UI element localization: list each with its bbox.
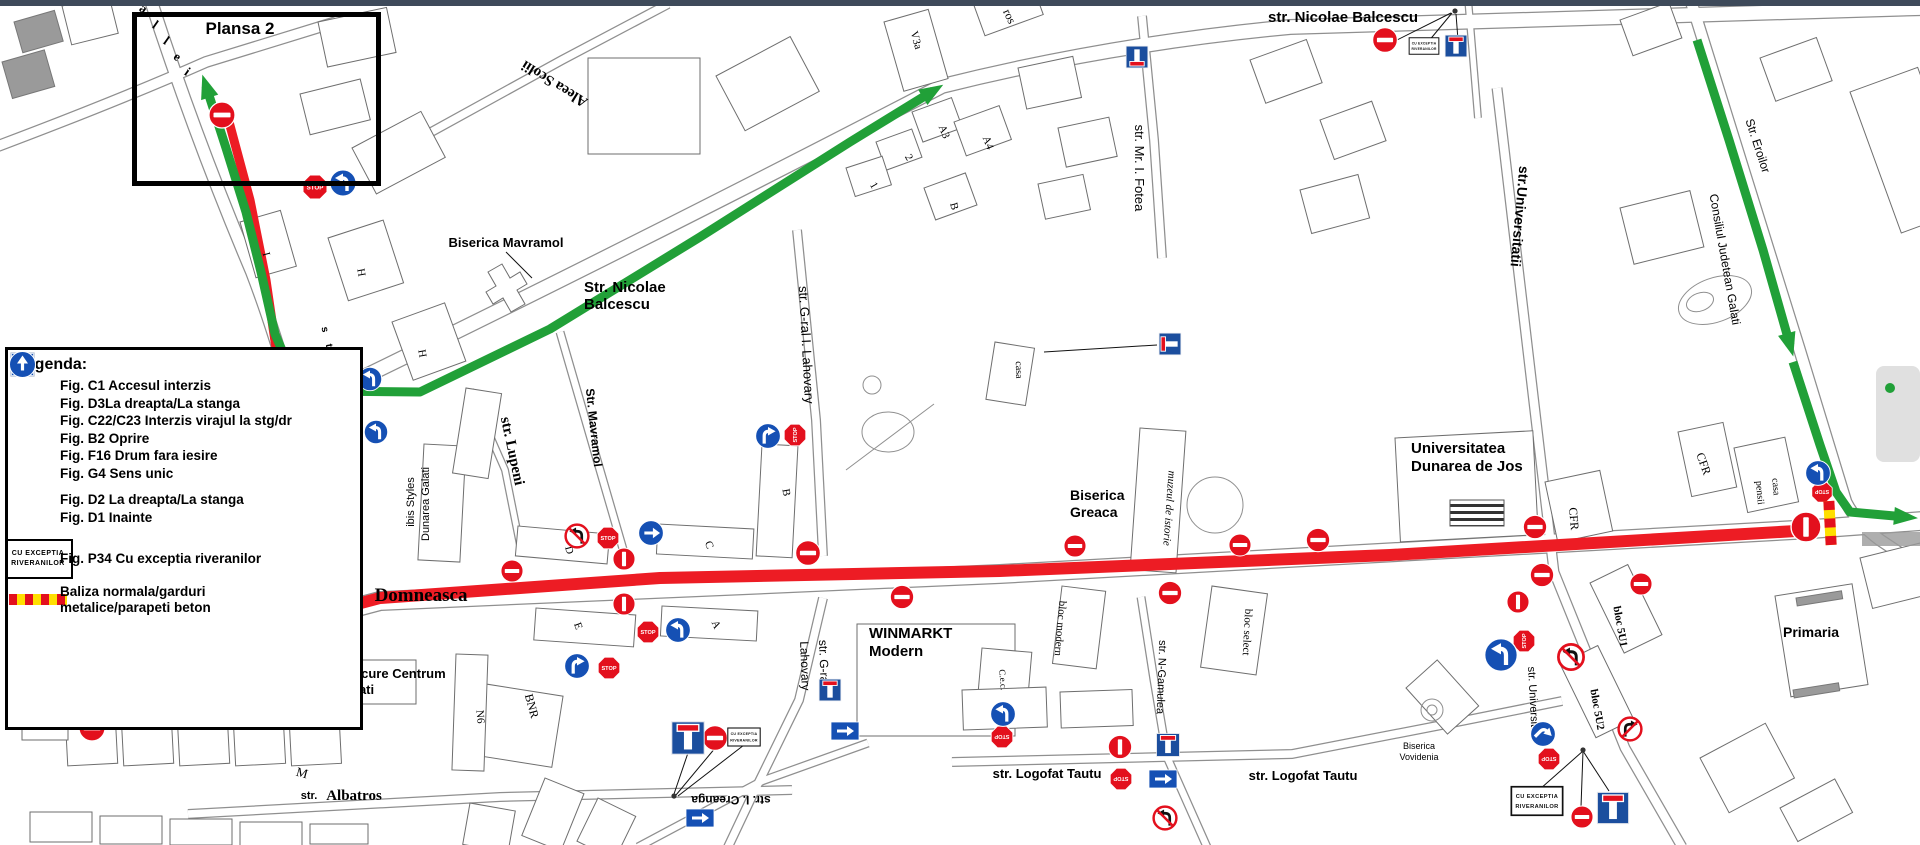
no-entry-sign	[1373, 28, 1398, 53]
street-label: Primaria	[1783, 624, 1839, 640]
dead-end-sign	[1597, 792, 1628, 823]
street-label: Vovidenia	[1399, 752, 1438, 762]
legend-p34-icon: CU EXCEPTIARIVERANILOR	[16, 539, 60, 579]
no-entry-sign	[501, 560, 523, 582]
dead-end-sign	[1445, 35, 1467, 57]
legend-item-label: Fig. B2 Oprire	[60, 431, 149, 447]
stop-sign	[637, 621, 659, 643]
except-residents-sign	[1409, 38, 1439, 55]
street-label: Str. Nicolae	[584, 279, 666, 296]
street-label: Greaca	[1070, 504, 1118, 520]
one-way-sign	[686, 809, 714, 827]
no-entry-sign	[703, 726, 728, 751]
stop-sign	[991, 726, 1013, 748]
leader-dot	[671, 793, 676, 798]
legend-item: Fig. G4 Sens unic	[16, 466, 352, 482]
turn-right-sign	[565, 654, 590, 679]
legend-item: Fig. F16 Drum fara iesire	[16, 448, 352, 464]
legend-item-label: Fig. F16 Drum fara iesire	[60, 448, 218, 464]
legend-item-label: Fig. C1 Accesul interzis	[60, 378, 211, 394]
one-way-sign	[1149, 770, 1177, 788]
leader-dot	[1580, 747, 1585, 752]
legend-item: CU EXCEPTIARIVERANILORFig. P34 Cu except…	[16, 536, 352, 582]
street-label: pensii	[1753, 480, 1766, 505]
stop-sign	[597, 527, 619, 549]
legend-panel: Legenda: Fig. C1 Accesul interzisFig. D3…	[5, 347, 363, 730]
route-dot	[1885, 383, 1895, 393]
street-label: casa	[1013, 361, 1025, 379]
street-label: casa	[1769, 478, 1782, 497]
legend-item: Fig. C1 Accesul interzis	[16, 378, 352, 394]
turn-left-sign	[1806, 461, 1831, 486]
turn-left-sign	[364, 420, 387, 443]
legend-bal-icon	[16, 594, 60, 605]
legend-item: Baliza normala/gardurimetalice/parapeti …	[16, 584, 352, 615]
direction-sign	[639, 521, 664, 546]
street-label: Dunarea de Jos	[1411, 458, 1523, 475]
dead-end-sign	[672, 722, 704, 754]
no-entry-sign	[1158, 581, 1181, 604]
street-label: Lahovary	[797, 641, 813, 691]
dead-end-sign	[1159, 333, 1181, 355]
legend-item-label: Fig. D2 La dreapta/La stanga	[60, 492, 244, 508]
barrier-marker	[1823, 501, 1836, 546]
street-label: Biserica Mavramol	[449, 235, 564, 250]
street-label: Modern	[869, 643, 923, 660]
route-arrowhead	[1778, 331, 1795, 357]
no-entry-sign	[1108, 735, 1131, 758]
turn-left-sign	[1485, 639, 1518, 672]
no-entry-sign	[1064, 535, 1086, 557]
leader-line	[1583, 751, 1609, 791]
street-label: M	[295, 764, 310, 782]
no-entry-sign	[1507, 591, 1529, 613]
legend-item: Fig. D3La dreapta/La stanga	[16, 396, 352, 412]
no-entry-sign	[796, 541, 821, 566]
no-entry-sign	[1530, 563, 1553, 586]
no-left-turn-sign	[566, 525, 589, 548]
no-entry-sign	[1229, 534, 1251, 556]
street-label: str. Logofat Tautu	[993, 766, 1102, 781]
legend-item-label: Fig. P34 Cu exceptia riveranilor	[60, 551, 261, 567]
leader-line	[1581, 751, 1583, 807]
street-label: Balcescu	[584, 296, 650, 313]
street-label: s	[319, 326, 331, 334]
street-label: str. G-ral I. Lahovary	[796, 286, 817, 405]
street-label: Dunarea Galati	[420, 467, 432, 541]
legend-item-label: Fig. D1 Inainte	[60, 510, 152, 526]
street-label: Biserica	[1403, 741, 1435, 751]
street-label: str.	[301, 790, 318, 802]
legend-item-label: Fig. D3La dreapta/La stanga	[60, 396, 240, 412]
legend-title: Legenda:	[16, 356, 352, 374]
street-label: str. Logofat Tautu	[1249, 768, 1358, 783]
no-entry-sign	[1523, 515, 1546, 538]
no-left-turn-sign	[1154, 807, 1177, 830]
street-label: C.e.c.	[997, 669, 1009, 691]
street-label: str. Nicolae Balcescu	[1268, 9, 1418, 26]
dead-end-sign	[1126, 46, 1148, 68]
legend-item-label: Fig. G4 Sens unic	[60, 466, 173, 482]
legend-item: Fig. B2 Oprire	[16, 431, 352, 447]
no-entry-sign	[613, 548, 635, 570]
traffic-plan-map: STOP	[0, 0, 1920, 845]
turn-left-sign	[666, 618, 691, 643]
legend-item: Fig. C22/C23 Interzis virajul la stg/dr	[16, 413, 352, 429]
window-top-bar	[0, 0, 1920, 6]
stop-sign	[784, 424, 806, 446]
legend-item-label: Fig. C22/C23 Interzis virajul la stg/dr	[60, 413, 292, 429]
plansa2-frame	[132, 12, 381, 186]
dead-end-sign	[1157, 734, 1180, 757]
street-label: CFR	[1566, 507, 1582, 531]
no-entry-sign	[1630, 573, 1652, 595]
street-label: WINMARKT	[869, 625, 952, 642]
street-label: Domneasca	[375, 585, 468, 606]
no-entry-sign	[1791, 512, 1821, 542]
leader-dot	[1452, 8, 1457, 13]
no-entry-sign	[890, 585, 913, 608]
no-entry-sign	[1571, 806, 1593, 828]
stop-sign	[1538, 748, 1560, 770]
legend-item: Fig. D1 Inainte	[16, 510, 352, 526]
stop-sign	[598, 657, 620, 679]
street-label: Consiliul Judetean Galati	[1707, 193, 1744, 326]
except-residents-sign	[1511, 787, 1562, 816]
street-label: Universitatea	[1411, 440, 1506, 457]
legend-item-label: Baliza normala/gardurimetalice/parapeti …	[60, 584, 211, 615]
street-label: str. I. Creanga	[691, 793, 771, 807]
street-label: N6	[473, 710, 486, 725]
street-label: str. N-Gamulea	[1154, 640, 1169, 715]
one-way-sign	[831, 722, 859, 740]
no-entry-sign	[1306, 528, 1329, 551]
street-label: str. Mr. I. Fotea	[1132, 125, 1147, 212]
except-residents-sign	[728, 728, 760, 746]
street-label: Biserica	[1070, 487, 1125, 503]
turn-left-sign	[991, 702, 1016, 727]
street-label: Albatros	[326, 788, 382, 804]
street-label: bloc select	[1240, 609, 1254, 656]
no-left-turn-sign	[1558, 644, 1583, 669]
stop-sign	[1110, 768, 1132, 790]
street-label: ibis Styles	[405, 477, 417, 527]
leader-line	[1044, 345, 1157, 352]
no-right-turn-sign	[1619, 718, 1642, 741]
no-entry-sign	[613, 593, 635, 615]
street-label: str. Lupeni	[497, 416, 527, 487]
turn-right-sign	[756, 424, 781, 449]
dead-end-sign	[819, 679, 841, 701]
legend-item: Fig. D2 La dreapta/La stanga	[16, 492, 352, 508]
